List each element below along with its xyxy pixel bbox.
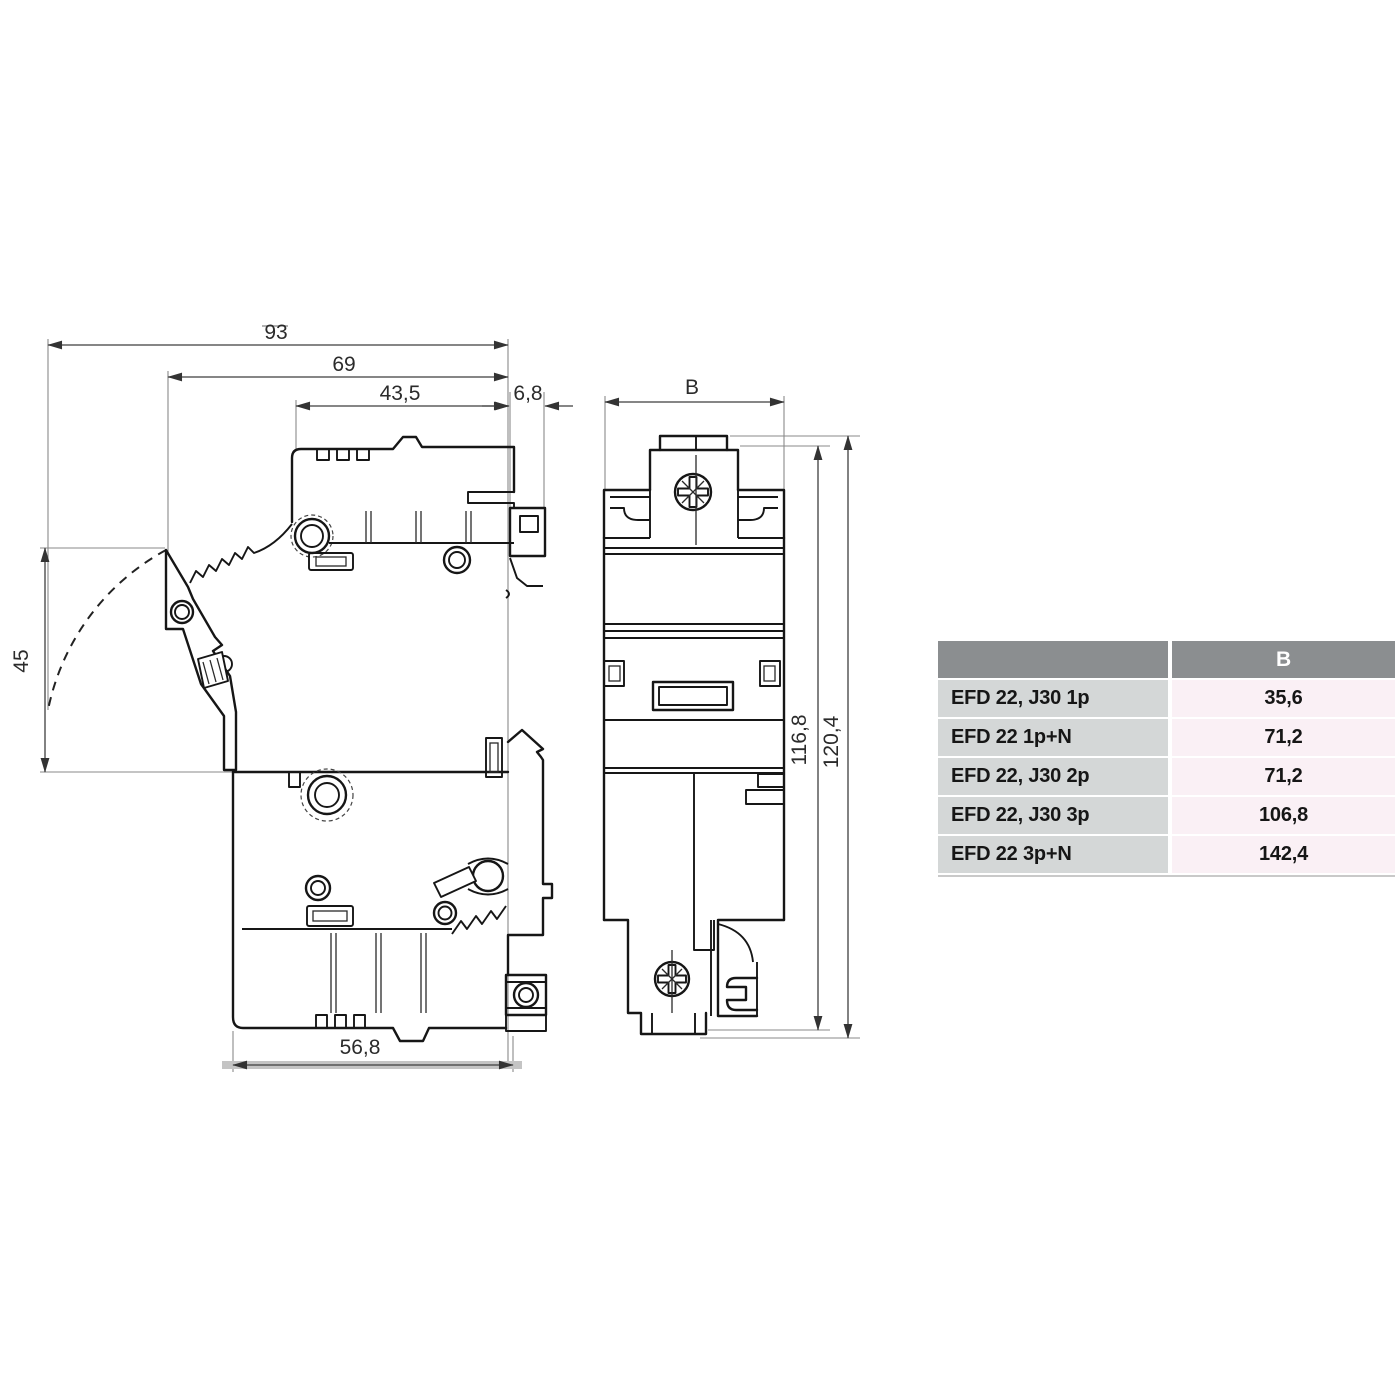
model-cell: EFD 22, J30 2p xyxy=(938,758,1168,795)
side-view-extension-lines xyxy=(40,326,544,1072)
model-cell: EFD 22, J30 1p xyxy=(938,680,1168,717)
dim-base-depth: 56,8 xyxy=(340,1036,381,1059)
model-cell: EFD 22, J30 3p xyxy=(938,797,1168,834)
table-row: EFD 22 3p+N 142,4 xyxy=(938,836,1395,873)
front-view-body xyxy=(604,436,784,1034)
side-view-dimensions: 93 69 43,5 6,8 45 56,8 xyxy=(10,321,573,1069)
table-header-b: B xyxy=(1172,641,1395,678)
table-header-row: B xyxy=(938,641,1395,678)
value-cell: 71,2 xyxy=(1172,719,1395,756)
dim-overall-depth: 93 xyxy=(264,321,287,344)
front-view-dimensions: B 116,8 120,4 xyxy=(605,376,848,1038)
table-bottom-border xyxy=(938,875,1395,877)
table-row: EFD 22, J30 2p 71,2 xyxy=(938,758,1395,795)
value-cell: 106,8 xyxy=(1172,797,1395,834)
table-row: EFD 22, J30 3p 106,8 xyxy=(938,797,1395,834)
front-view: B 116,8 120,4 xyxy=(604,376,860,1038)
dim-body-height: 116,8 xyxy=(788,715,811,766)
table-row: EFD 22, J30 1p 35,6 xyxy=(938,680,1395,717)
table-row: EFD 22 1p+N 71,2 xyxy=(938,719,1395,756)
model-cell: EFD 22 3p+N xyxy=(938,836,1168,873)
table-header-model xyxy=(938,641,1168,678)
dim-handle-depth: 69 xyxy=(332,353,355,376)
dim-rail-claw-depth: 6,8 xyxy=(513,382,542,405)
dim-upper-body-depth: 43,5 xyxy=(380,382,421,405)
side-view: 93 69 43,5 6,8 45 56,8 xyxy=(10,321,573,1072)
value-cell: 142,4 xyxy=(1172,836,1395,873)
dim-width-b: B xyxy=(685,376,699,399)
side-view-upper-body xyxy=(190,437,545,598)
top-screw xyxy=(675,474,711,510)
value-cell: 35,6 xyxy=(1172,680,1395,717)
side-view-base xyxy=(233,730,552,1041)
dim-overall-height: 120,4 xyxy=(820,715,843,768)
dimension-table: B EFD 22, J30 1p 35,6 EFD 22 1p+N 71,2 E… xyxy=(938,641,1395,877)
value-cell: 71,2 xyxy=(1172,758,1395,795)
model-cell: EFD 22 1p+N xyxy=(938,719,1168,756)
dim-handle-travel: 45 xyxy=(10,649,33,672)
side-view-handle xyxy=(48,550,236,770)
technical-drawing-page: 93 69 43,5 6,8 45 56,8 xyxy=(0,0,1400,1400)
handle-swing-arc xyxy=(48,550,166,710)
